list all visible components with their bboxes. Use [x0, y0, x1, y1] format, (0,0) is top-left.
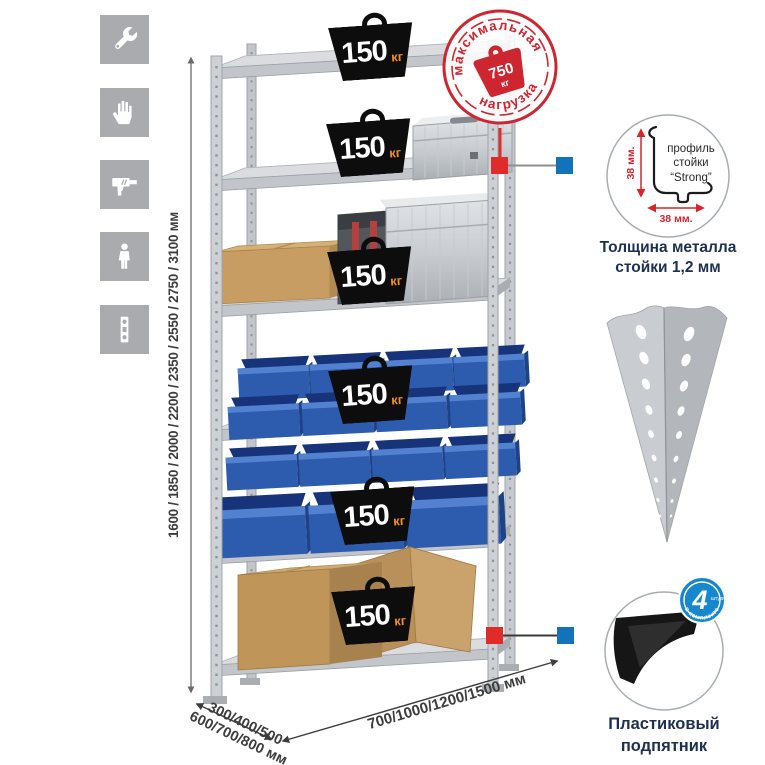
- tool-tile-wrench: [100, 15, 149, 64]
- shelf-load-unit: кг: [389, 144, 402, 160]
- shelf-load-value: 150: [342, 499, 390, 535]
- gloves-icon: [109, 97, 140, 128]
- product-infographic: 1600 / 1850 / 2000 / 2200 / 2350 / 2550 …: [0, 0, 765, 765]
- profile-label-2: стойки: [673, 157, 708, 169]
- shelf-load-value: 150: [343, 599, 391, 635]
- profile-caption-line2: стойки 1,2 мм: [593, 258, 743, 278]
- quantity-small-label: штуки: [711, 596, 725, 602]
- wrench-icon: [109, 24, 140, 55]
- foot-detail: 4 штуки в комплекте: [605, 577, 725, 710]
- profile-caption-line1: Толщина металла: [593, 238, 743, 258]
- weight-badge-shelf4: 150кг: [327, 365, 417, 425]
- foot-caption-line1: Пластиковый: [589, 713, 739, 735]
- shelf-load-value: 150: [340, 35, 388, 71]
- shelf-load-unit: кг: [391, 48, 404, 64]
- foot-caption: Пластиковый подпятник: [589, 713, 739, 757]
- shelf-load-unit: кг: [391, 391, 404, 407]
- profile-dim-horizontal: 38 мм.: [659, 213, 692, 225]
- blue-marker: [557, 627, 574, 644]
- angle-post-product: [607, 306, 727, 542]
- profile-caption: Толщина металла стойки 1,2 мм: [593, 238, 743, 278]
- shelf-load-unit: кг: [393, 512, 406, 528]
- drill-icon: [109, 169, 140, 200]
- shelf-load-value: 150: [338, 131, 386, 167]
- foot-caption-line2: подпятник: [589, 735, 739, 757]
- red-marker: [486, 627, 503, 644]
- profile-dim-vertical: 38 мм.: [625, 146, 637, 179]
- weight-badge-shelf6: 150кг: [330, 586, 420, 646]
- shelf-load-unit: кг: [394, 612, 407, 628]
- tool-tile-person: [100, 232, 149, 281]
- tool-tile-gloves: [100, 88, 149, 137]
- quantity-badge: 4 штуки в комплекте: [679, 577, 725, 623]
- tool-tile-drill: [100, 160, 149, 209]
- width-dimension: 700/1000/1200/1500 мм: [283, 661, 557, 741]
- profile-detail: 38 мм. 38 мм. профиль стойки “Strong”: [607, 115, 729, 237]
- weight-badge-shelf2: 150кг: [325, 118, 415, 178]
- blue-marker: [556, 157, 573, 174]
- height-dimension: 1600 / 1850 / 2000 / 2200 / 2350 / 2550 …: [166, 58, 191, 692]
- depth-dimension: 300/400/500 600/700/800 мм: [187, 694, 297, 765]
- level-icon: [109, 314, 140, 345]
- quantity-value: 4: [691, 585, 707, 615]
- weight-badge-shelf5: 150кг: [329, 486, 419, 546]
- shelf-load-value: 150: [339, 259, 387, 295]
- shelf-load-unit: кг: [390, 272, 403, 288]
- tool-tile-level: [100, 305, 149, 354]
- foot-callout: [486, 627, 574, 644]
- weight-badge-shelf3: 150кг: [326, 246, 416, 306]
- weight-badge-shelf1: 150кг: [327, 22, 417, 82]
- person-icon: [109, 241, 140, 272]
- red-marker: [491, 157, 508, 174]
- shelf-load-value: 150: [340, 378, 388, 414]
- profile-label-1: профиль: [667, 143, 715, 155]
- width-label: 700/1000/1200/1500 мм: [366, 670, 528, 733]
- height-label: 1600 / 1850 / 2000 / 2200 / 2350 / 2550 …: [166, 212, 181, 538]
- profile-label-3: “Strong”: [670, 172, 712, 184]
